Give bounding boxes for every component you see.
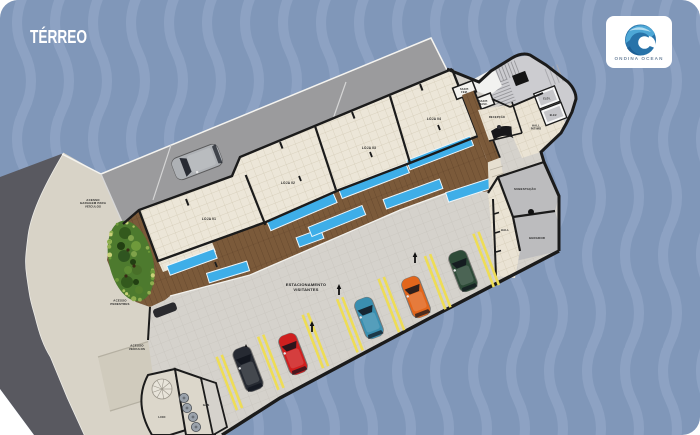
svg-text:TÉRREO: TÉRREO [30,26,87,47]
svg-text:LOJA 01: LOJA 01 [202,217,216,221]
svg-text:LOJA 02: LOJA 02 [281,181,295,185]
svg-text:GERADOR: GERADOR [529,236,546,240]
svg-text:HALLÍNTIMO: HALLÍNTIMO [531,124,542,131]
svg-text:LIXO: LIXO [158,415,166,419]
svg-text:ONDINA OCEAN: ONDINA OCEAN [614,56,663,61]
svg-text:ELEV.: ELEV. [550,115,558,117]
svg-text:GÁS: GÁS [203,402,210,407]
svg-text:LOJA 04: LOJA 04 [427,117,441,121]
svg-text:ACESSOVEÍCULOS: ACESSOVEÍCULOS [129,343,145,350]
svg-text:LOJA 03: LOJA 03 [362,146,376,150]
svg-text:HALL: HALL [501,228,509,232]
svg-text:ELEV.: ELEV. [543,98,551,100]
svg-text:SUBESTAÇÃO: SUBESTAÇÃO [514,186,537,191]
